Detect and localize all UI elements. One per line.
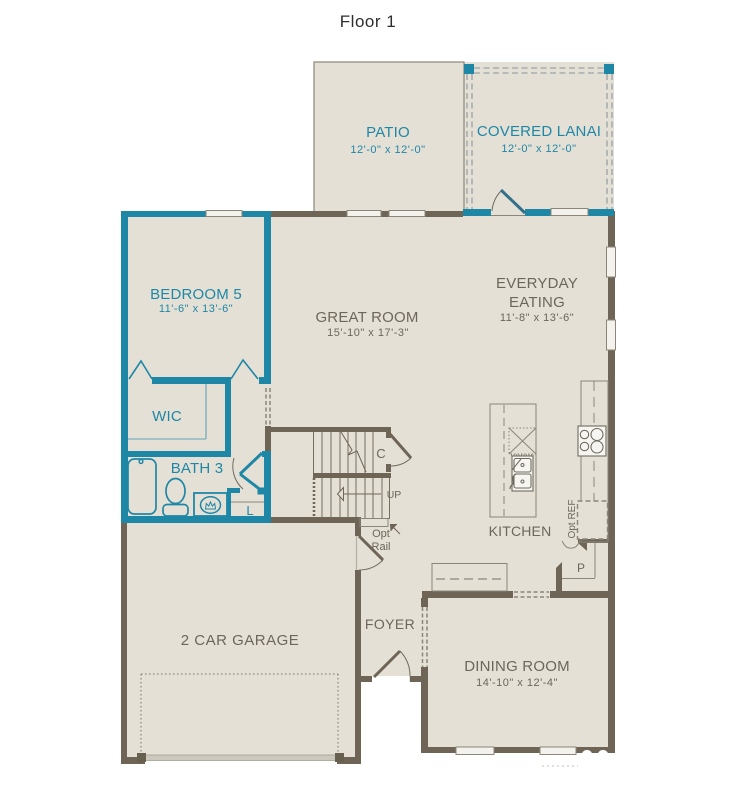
svg-text:12'-0" x 12'-0": 12'-0" x 12'-0" xyxy=(501,143,576,155)
svg-text:15'-10" x 17'-3": 15'-10" x 17'-3" xyxy=(327,327,409,339)
svg-text:KITCHEN: KITCHEN xyxy=(489,523,552,539)
svg-text:GREAT ROOM: GREAT ROOM xyxy=(315,309,418,326)
svg-text:BEDROOM 5: BEDROOM 5 xyxy=(150,286,242,303)
svg-text:FOYER: FOYER xyxy=(365,616,415,632)
svg-text:P: P xyxy=(577,561,585,575)
svg-text:EATING: EATING xyxy=(509,294,565,311)
svg-text:C: C xyxy=(376,446,385,461)
svg-text:2 CAR GARAGE: 2 CAR GARAGE xyxy=(181,632,300,649)
svg-text:12'-0" x 12'-0": 12'-0" x 12'-0" xyxy=(350,144,425,156)
svg-text:Opt: Opt xyxy=(372,528,390,540)
svg-text:PATIO: PATIO xyxy=(366,124,410,141)
svg-text:EVERYDAY: EVERYDAY xyxy=(496,275,578,292)
svg-text:11'-8" x 13'-6": 11'-8" x 13'-6" xyxy=(500,312,574,324)
svg-text:DINING ROOM: DINING ROOM xyxy=(464,658,570,675)
svg-text:L: L xyxy=(246,503,253,518)
svg-text:UP: UP xyxy=(387,489,402,501)
svg-text:11'-6" x 13'-6": 11'-6" x 13'-6" xyxy=(159,303,233,315)
svg-text:WIC: WIC xyxy=(152,408,182,425)
svg-text:BATH 3: BATH 3 xyxy=(171,460,224,477)
svg-text:COVERED LANAI: COVERED LANAI xyxy=(477,123,601,140)
svg-text:Floor 1: Floor 1 xyxy=(340,12,396,31)
svg-text:14'-10" x 12'-4": 14'-10" x 12'-4" xyxy=(476,677,558,689)
svg-text:Opt REF: Opt REF xyxy=(567,500,578,539)
